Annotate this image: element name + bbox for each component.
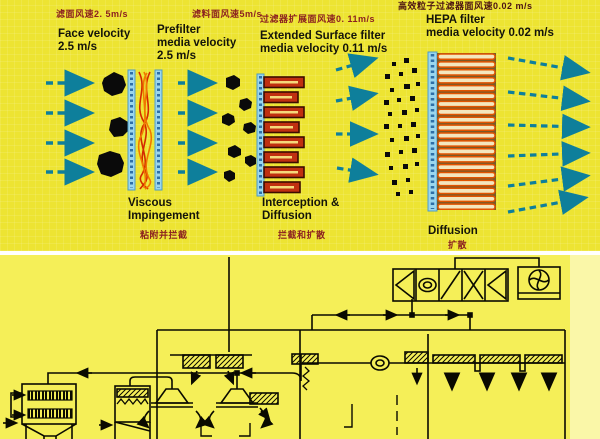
cleanroom-hepa-ceiling — [428, 355, 565, 371]
interlayer-duct — [302, 352, 428, 383]
filter-symbol-icon — [396, 271, 414, 299]
fine-particle-cloud — [384, 58, 420, 196]
airflow-arrows-4 — [508, 58, 586, 212]
airflow-arrows-2 — [178, 83, 213, 172]
airflow-arrows-3 — [336, 59, 374, 174]
fan-symbol-icon — [371, 356, 389, 370]
slide-canvas: 滤面风速2. 5m/s Face velocity 2.5 m/s 滤料面风速5… — [0, 0, 600, 439]
prefilter-graphic — [128, 70, 162, 190]
medium-particles — [222, 75, 256, 182]
fan-symbol-icon — [419, 279, 436, 292]
media-filter-unit — [99, 377, 172, 439]
air-handling-unit — [393, 269, 508, 301]
coil-symbol-icon — [441, 271, 460, 299]
supply-duct — [312, 299, 472, 330]
extended-surface-filter-graphic — [257, 74, 304, 196]
dust-collector — [3, 384, 76, 439]
ceiling-filter-boxes — [170, 355, 252, 383]
wall-filter-and-damper — [292, 354, 318, 439]
airflow-arrows-1 — [46, 83, 90, 172]
partition-stubs — [201, 395, 397, 436]
supply-hood-1 — [144, 389, 201, 427]
return-fan — [518, 267, 560, 299]
filtration-stages-panel: 滤面风速2. 5m/s Face velocity 2.5 m/s 滤料面风速5… — [0, 0, 600, 251]
filtration-diagram — [0, 0, 600, 251]
laminar-flow-arrows — [452, 373, 549, 388]
filter-symbol-icon — [488, 271, 506, 299]
hepa-filter-graphic — [428, 52, 496, 211]
large-particles — [97, 72, 129, 177]
room-walls — [157, 257, 565, 439]
hvac-schematic — [0, 255, 600, 439]
return-duct — [48, 354, 301, 384]
